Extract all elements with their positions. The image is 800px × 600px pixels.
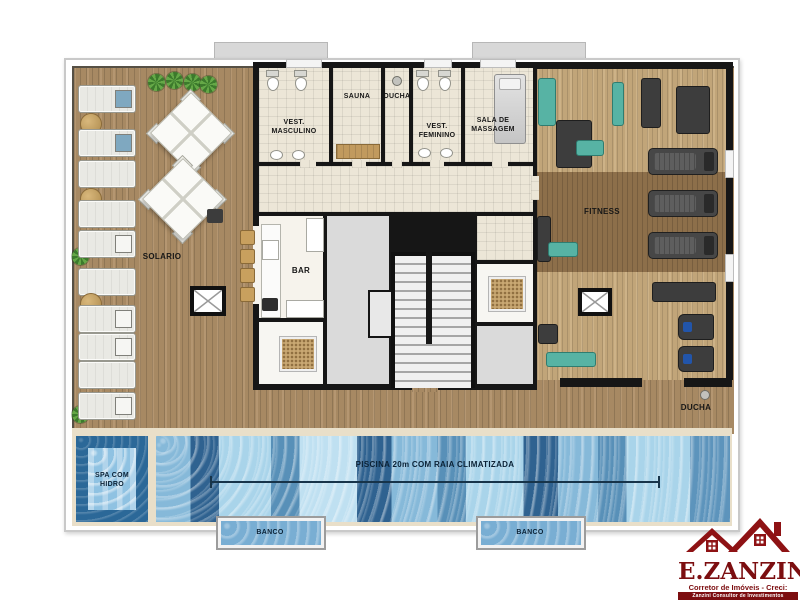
skylight-icon (578, 288, 612, 316)
bar-appliance (262, 240, 279, 260)
gym-machine-icon (676, 86, 710, 134)
door-gap (531, 176, 539, 200)
stair-divider (426, 252, 432, 344)
logo-name: E.ZANZINI (678, 560, 798, 583)
bar-table (286, 300, 324, 318)
door-gap (300, 160, 316, 168)
bar-stool (240, 230, 255, 245)
stove-icon (262, 298, 278, 311)
corridor-right (477, 216, 533, 260)
lane-line-cap (210, 476, 212, 488)
lounger (78, 129, 136, 157)
sink-icon (270, 150, 283, 160)
door-gap (392, 160, 402, 168)
door-gap (352, 160, 366, 168)
corridor (259, 166, 533, 212)
gym-machine-icon (538, 324, 558, 344)
window-sill (725, 150, 734, 178)
solario-label: SOLARIO (130, 252, 194, 262)
door-gap (492, 160, 508, 168)
sauna-label: SAUNA (333, 92, 381, 101)
sink-icon (292, 150, 305, 160)
lounger (78, 333, 136, 361)
exercise-bike-icon (678, 314, 714, 340)
window-sill (424, 59, 452, 68)
bar-stool (240, 268, 255, 283)
skylight-icon (190, 286, 226, 316)
sink-icon (440, 148, 453, 158)
treadmill-icon (648, 148, 718, 175)
ducha-label: DUCHA (381, 92, 413, 101)
elevator-carpet (489, 277, 525, 311)
gym-machine-icon (652, 282, 716, 302)
gym-machine-icon (612, 82, 624, 126)
ducha-externa-label: DUCHA (666, 403, 726, 413)
machine-room (477, 326, 533, 384)
fitness-label: FITNESS (570, 207, 634, 217)
gym-bench-icon (548, 242, 578, 257)
window-sill (480, 59, 516, 68)
lane-line-cap (658, 476, 660, 488)
gym-bench-icon (546, 352, 596, 367)
pool (156, 436, 730, 522)
logo: E.ZANZINI Corretor de Imóveis - Creci: 1… (678, 512, 798, 600)
vest-feminino-label: VEST. FEMININO (413, 122, 461, 140)
vest-masculino-label: VEST. MASCULINO (259, 118, 329, 136)
window-sill (286, 59, 322, 68)
bar-stool (240, 287, 255, 302)
fitness-bottom-wall (684, 378, 732, 387)
plant-icon (184, 74, 201, 91)
window-sill (725, 254, 734, 282)
spa-label: SPA COM HIDRO (76, 471, 148, 489)
banco-right-label: BANCO (478, 528, 582, 537)
lounger (78, 85, 136, 113)
massagem-label: SALA DE MASSAGEM (463, 116, 523, 134)
gym-bench-icon (576, 140, 604, 156)
sauna-bench (336, 144, 380, 159)
fitness-right-wall (726, 68, 733, 380)
bar-stool (240, 249, 255, 264)
fitness-top-wall (537, 62, 733, 69)
lounger (78, 361, 136, 389)
elevator-carpet (280, 337, 316, 371)
lounger (78, 392, 136, 420)
bar-label: BAR (284, 266, 318, 276)
fitness-bottom-wall (560, 378, 642, 387)
door-gap (430, 160, 444, 168)
gym-machine-icon (538, 78, 556, 126)
treadmill-icon (648, 190, 718, 217)
lounger (78, 200, 136, 228)
toilet-icon (294, 70, 307, 89)
gym-machine-icon (641, 78, 661, 128)
lounger (78, 305, 136, 333)
lounger (78, 160, 136, 188)
shower-icon (392, 76, 402, 86)
plant-icon (166, 72, 183, 89)
floor-plan: SPA COM HIDRO PISCINA 20m COM RAIA CLIMA… (0, 0, 800, 600)
pool-label: PISCINA 20m COM RAIA CLIMATIZADA (250, 460, 620, 470)
logo-banner: Zanzini Consultor de Investimentos Imobi… (678, 592, 798, 600)
toilet-icon (438, 70, 451, 89)
plant-icon (148, 74, 165, 91)
plant-icon (200, 76, 217, 93)
fridge-icon (306, 218, 324, 252)
lane-line (212, 481, 658, 483)
doormat (207, 209, 223, 223)
treadmill-icon (648, 232, 718, 259)
stairs (391, 252, 475, 388)
toilet-icon (416, 70, 429, 89)
lounger (78, 268, 136, 296)
toilet-icon (266, 70, 279, 89)
lounger (78, 230, 136, 258)
banco-left-label: BANCO (218, 528, 322, 537)
exercise-bike-icon (678, 346, 714, 372)
sink-icon (418, 148, 431, 158)
shower-icon (700, 390, 710, 400)
